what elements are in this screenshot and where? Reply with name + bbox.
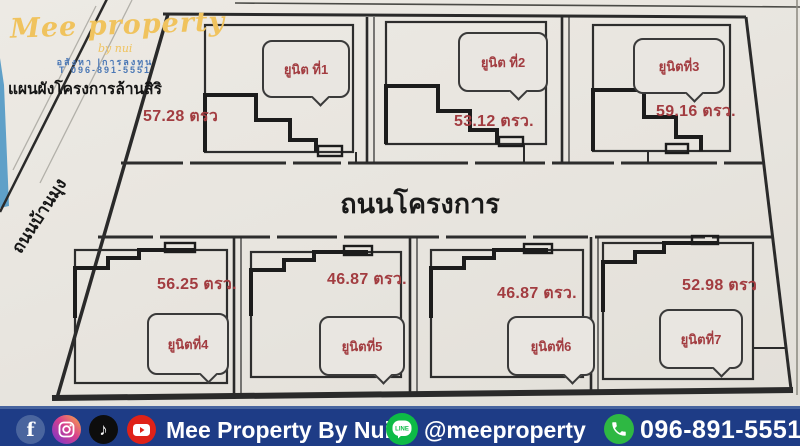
plan-title: แผนผังโครงการล้านสิริ: [8, 76, 162, 101]
brand-logo-tagline: by nui: [98, 42, 132, 55]
unit6-bubble: ยูนิตที่6: [507, 316, 595, 376]
youtube-play-glyph: [132, 423, 151, 437]
unit2-area-label: 53.12 ตรว.: [454, 109, 534, 134]
line-bubble-glyph: LINE: [390, 417, 414, 441]
youtube-icon: [127, 415, 156, 444]
facebook-glyph: f: [26, 419, 34, 441]
unit2-bubble: ยูนิต ที่2: [458, 32, 548, 92]
unit4-area-label: 56.25 ตรว.: [157, 272, 237, 297]
instagram-camera-glyph: [58, 421, 75, 438]
unit1-bubble: ยูนิต ที่1: [262, 40, 350, 98]
paper-top-edge: [235, 3, 800, 7]
phone-icon: [604, 414, 634, 444]
phone-handset-glyph: [610, 420, 628, 438]
contact-bar: f ♪ Mee Property By Nui LINE: [0, 406, 800, 446]
main-road-label: ถนนโครงการ: [300, 182, 540, 225]
svg-text:LINE: LINE: [395, 427, 409, 433]
unit7-area-label: 52.98 ตรว: [682, 273, 757, 298]
tiktok-icon: ♪: [89, 415, 118, 444]
flyer-canvas: Mee property by nui อสังหา |การลงทุน T 0…: [0, 0, 800, 446]
bottom-boundary: [52, 390, 793, 398]
footer-brand-name: Mee Property By Nui: [166, 417, 391, 444]
unit5-area-label: 46.87 ตรว.: [327, 267, 407, 292]
instagram-icon: [52, 415, 81, 444]
brand-phone-small: T 096-891-5551: [30, 65, 180, 75]
unit3-bubble: ยูนิตที่3: [633, 38, 725, 94]
line-icon: LINE: [386, 413, 418, 445]
footer-line-handle: @meeproperty: [424, 417, 586, 444]
unit1-footprint: [205, 95, 316, 152]
unit6-area-label: 46.87 ตรว.: [497, 281, 577, 306]
tiktok-glyph: ♪: [99, 420, 108, 440]
unit3-area-label: 59.16 ตรว.: [656, 99, 736, 124]
facebook-icon: f: [16, 415, 45, 444]
unit5-bubble: ยูนิตที่5: [319, 316, 405, 376]
unit4-bubble: ยูนิตที่4: [147, 313, 229, 375]
footer-phone-number: 096-891-5551: [640, 416, 800, 445]
unit1-area-label: 57.28 ตรว: [143, 104, 218, 129]
unit7-bubble: ยูนิตที่7: [659, 309, 743, 369]
